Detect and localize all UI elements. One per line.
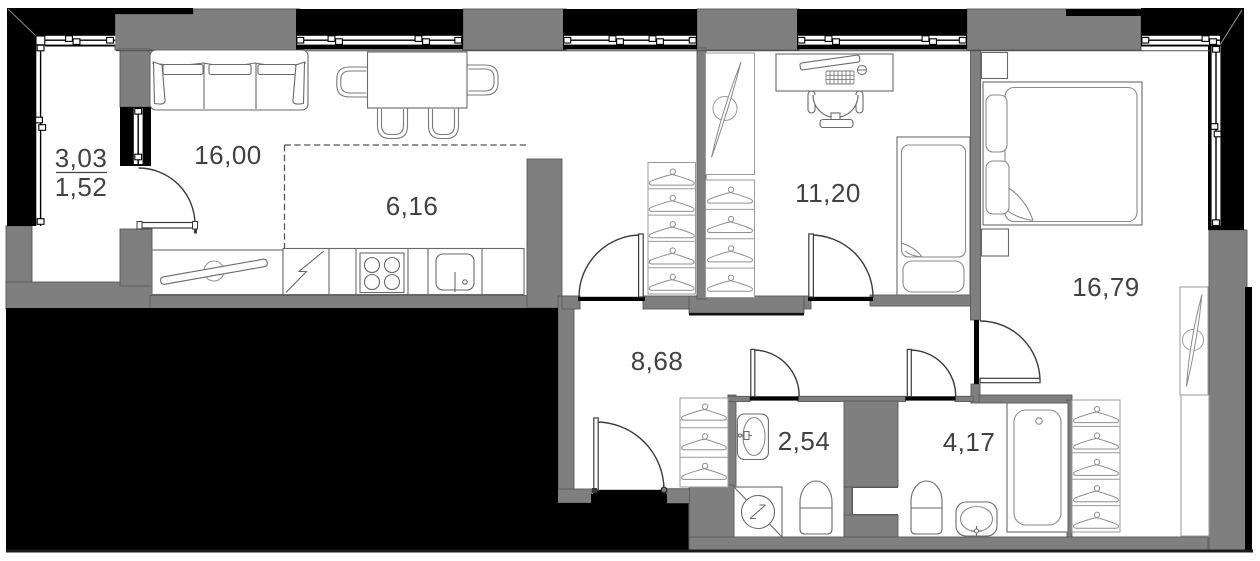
svg-text:16,00: 16,00 [194, 140, 262, 170]
svg-text:3,03: 3,03 [55, 143, 108, 173]
svg-text:4,17: 4,17 [943, 427, 996, 457]
svg-text:1,52: 1,52 [55, 172, 108, 202]
svg-text:2,54: 2,54 [778, 426, 831, 456]
svg-text:8,68: 8,68 [631, 346, 684, 376]
svg-text:6,16: 6,16 [386, 191, 439, 221]
svg-text:16,79: 16,79 [1072, 272, 1140, 302]
svg-text:11,20: 11,20 [795, 178, 861, 208]
